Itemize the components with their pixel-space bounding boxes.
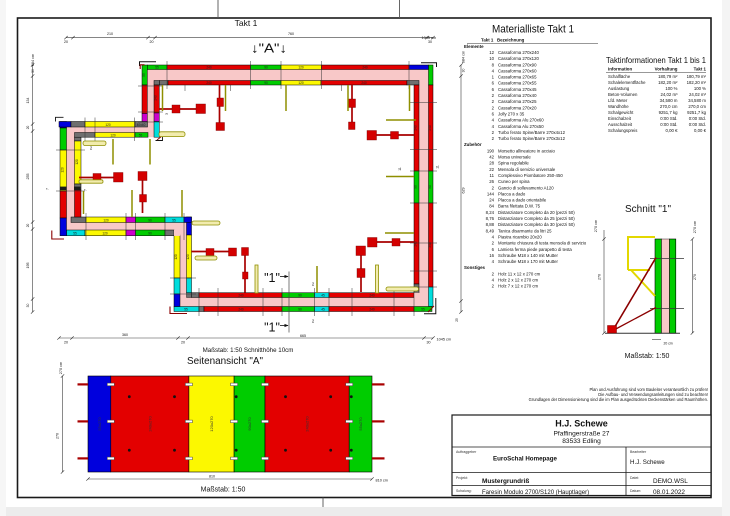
svg-text:Cassaforma 270x240: Cassaforma 270x240 — [498, 50, 539, 55]
svg-text:Turbo ferato Spine/Barre 270x4: Turbo ferato Spine/Barre 270x4x12 — [498, 130, 566, 135]
svg-text:270: 270 — [693, 274, 697, 280]
svg-text:Schalgewicht: Schalgewicht — [608, 110, 634, 115]
svg-text:55: 55 — [184, 308, 188, 312]
svg-text:Maßstab: 1:50 Schnitthöhe 10: Maßstab: 1:50 Schnitthöhe 10cm — [203, 347, 294, 354]
svg-text:100 %: 100 % — [665, 86, 677, 91]
svg-text:240: 240 — [154, 95, 158, 101]
svg-text:DEMO.WSL: DEMO.WSL — [653, 478, 688, 485]
svg-text:08.01.2022: 08.01.2022 — [653, 489, 685, 496]
svg-text:Schalung:: Schalung: — [456, 489, 472, 493]
svg-text:Faresin Modulo 2700/S120 (Haup: Faresin Modulo 2700/S120 (Hauptlager) — [482, 490, 589, 496]
svg-text:0:00 Std.: 0:00 Std. — [689, 122, 706, 127]
svg-text:Lfd. Meter: Lfd. Meter — [608, 98, 628, 103]
svg-text:30: 30 — [462, 69, 466, 73]
svg-text:Cassaforma 270x20: Cassaforma 270x20 — [498, 105, 537, 110]
svg-text:Maßstab: 1:50: Maßstab: 1:50 — [625, 353, 670, 360]
svg-text:55x270: 55x270 — [358, 417, 363, 431]
svg-text:90: 90 — [298, 308, 302, 312]
svg-text:0,00 €: 0,00 € — [666, 128, 679, 133]
svg-text:Cassaforma 270x40: Cassaforma 270x40 — [498, 93, 537, 98]
svg-text:Grundlagen der Dimensionierung: Grundlagen der Dimensionierung sind die … — [529, 397, 708, 402]
svg-text:120: 120 — [298, 81, 304, 85]
svg-text:Maßstab: 1:50: Maßstab: 1:50 — [201, 487, 246, 494]
svg-text:Vorhaltung: Vorhaltung — [655, 67, 678, 72]
svg-text:760: 760 — [288, 32, 294, 36]
svg-text:90: 90 — [264, 66, 268, 70]
svg-text:20: 20 — [181, 341, 185, 345]
svg-text:22: 22 — [489, 167, 494, 172]
svg-text:24,02 m³: 24,02 m³ — [689, 92, 707, 97]
svg-text:16: 16 — [489, 253, 494, 258]
svg-text:684 cm: 684 cm — [462, 51, 466, 63]
svg-text:810 cm: 810 cm — [376, 479, 388, 483]
svg-text:EuroSchal Homepage: EuroSchal Homepage — [493, 456, 558, 463]
svg-text:55: 55 — [421, 308, 425, 312]
svg-text:Takt 1: Takt 1 — [235, 18, 258, 28]
svg-text:255: 255 — [26, 174, 30, 180]
svg-text:144: 144 — [487, 191, 495, 196]
svg-text:Piastra ricambio 20x20: Piastra ricambio 20x20 — [498, 234, 542, 239]
svg-text:120: 120 — [103, 219, 109, 223]
svg-text:Holz 7 x 12 x 270 cm: Holz 7 x 12 x 270 cm — [498, 284, 539, 289]
svg-text:210: 210 — [107, 32, 113, 36]
svg-text:20: 20 — [64, 40, 68, 44]
svg-text:84: 84 — [489, 204, 494, 209]
svg-text:7: 7 — [84, 189, 88, 191]
svg-text:Barra filettata D.W. 75: Barra filettata D.W. 75 — [498, 204, 541, 209]
svg-text:Taktinformationen Takt 1 bis: Taktinformationen Takt 1 bis 1 — [606, 55, 706, 65]
svg-text:120: 120 — [60, 167, 64, 173]
svg-text:1045 cm: 1045 cm — [422, 36, 437, 40]
svg-text:120: 120 — [105, 123, 111, 127]
svg-text:Cuneo per spina: Cuneo per spina — [498, 179, 530, 184]
svg-text:Beton-Volumen: Beton-Volumen — [608, 92, 638, 97]
svg-text:55: 55 — [155, 66, 159, 70]
svg-text:8,76: 8,76 — [486, 216, 495, 221]
svg-text:120: 120 — [110, 134, 116, 138]
svg-text:Cassaforma 270x60: Cassaforma 270x60 — [498, 68, 537, 73]
svg-text:0:00 Std.: 0:00 Std. — [660, 116, 677, 121]
svg-text:34,580 m: 34,580 m — [660, 98, 678, 103]
svg-text:0:00 Std.: 0:00 Std. — [689, 116, 706, 121]
svg-text:240: 240 — [238, 308, 244, 312]
svg-text:Schraube M18 x 140 mit Mutter: Schraube M18 x 140 mit Mutter — [498, 253, 559, 258]
svg-text:190: 190 — [487, 148, 495, 153]
svg-text:83533 Edling: 83533 Edling — [562, 438, 601, 445]
svg-text:40x40: 40x40 — [137, 123, 146, 127]
svg-text:55x270: 55x270 — [97, 417, 102, 431]
svg-text:H.J. Schewe: H.J. Schewe — [555, 419, 608, 429]
svg-text:360: 360 — [122, 333, 128, 337]
svg-text:195: 195 — [26, 263, 30, 269]
svg-text:Zubehör: Zubehör — [464, 142, 482, 147]
svg-text:120: 120 — [75, 159, 79, 165]
svg-text:Jolly 270 x 35: Jolly 270 x 35 — [498, 111, 525, 116]
svg-text:55: 55 — [142, 73, 146, 77]
svg-text:Lamiera ferma piede parapetto: Lamiera ferma piede parapetto di testa — [498, 247, 572, 252]
svg-text:240: 240 — [414, 241, 418, 247]
svg-text:"1": "1" — [264, 321, 280, 335]
svg-text:90: 90 — [298, 294, 302, 298]
svg-text:9251,7 kg: 9251,7 kg — [659, 110, 678, 115]
svg-text:240: 240 — [369, 308, 375, 312]
svg-text:Wandhöhe: Wandhöhe — [608, 104, 629, 109]
svg-text:H.J. Schewe: H.J. Schewe — [630, 459, 665, 466]
svg-text:240: 240 — [238, 294, 244, 298]
svg-text:134: 134 — [26, 98, 30, 104]
svg-text:30: 30 — [31, 69, 35, 73]
svg-text:270 cm: 270 cm — [594, 220, 598, 232]
svg-text:Holz 2 x 12 x 270 cm: Holz 2 x 12 x 270 cm — [498, 278, 539, 283]
svg-text:0,00 €: 0,00 € — [694, 128, 707, 133]
svg-text:Takt 1: Takt 1 — [694, 67, 707, 72]
svg-text:Placca a dado orientabile: Placca a dado orientabile — [498, 198, 547, 203]
svg-text:90: 90 — [148, 219, 152, 223]
svg-text:Cassaforma 270x120: Cassaforma 270x120 — [498, 56, 539, 61]
svg-text:Sonstiges: Sonstiges — [464, 265, 486, 270]
svg-text:Cassaforma 270x25: Cassaforma 270x25 — [498, 99, 537, 104]
svg-text:Schalfläche: Schalfläche — [608, 74, 631, 79]
svg-text:Datei:: Datei: — [630, 476, 639, 480]
svg-text:Cassaforma 270x55: Cassaforma 270x55 — [498, 81, 537, 86]
svg-text:24,02 m³: 24,02 m³ — [661, 92, 679, 97]
svg-text:20: 20 — [150, 40, 154, 44]
svg-text:665: 665 — [300, 334, 306, 338]
svg-text:240x270: 240x270 — [147, 416, 152, 432]
svg-text:Cassaforma Alu 270x60: Cassaforma Alu 270x60 — [498, 118, 544, 123]
svg-text:240: 240 — [206, 66, 212, 70]
svg-text:120: 120 — [298, 66, 304, 70]
svg-text:8,49: 8,49 — [486, 228, 495, 233]
svg-text:3: 3 — [165, 113, 169, 115]
svg-text:240: 240 — [361, 81, 367, 85]
svg-text:270 cm: 270 cm — [59, 362, 63, 374]
svg-text:26: 26 — [489, 179, 494, 184]
svg-text:240: 240 — [206, 81, 212, 85]
svg-text:270: 270 — [598, 274, 602, 280]
svg-text:240: 240 — [414, 125, 418, 131]
svg-text:Cassaforma 270x90: Cassaforma 270x90 — [498, 62, 537, 67]
svg-text:45: 45 — [321, 294, 325, 298]
svg-text:Materialliste Takt 1: Materialliste Takt 1 — [492, 24, 574, 36]
svg-text:Takt 1: Takt 1 — [481, 38, 494, 43]
svg-text:55: 55 — [172, 219, 176, 223]
svg-text:Complessivo Piombatore 250-450: Complessivo Piombatore 250-450 — [498, 173, 563, 178]
svg-text:270: 270 — [56, 433, 60, 439]
svg-text:Distanziatore Completo da 25 (: Distanziatore Completo da 25 (pezzi 50) — [498, 216, 575, 221]
svg-text:Cassaforma 270x45: Cassaforma 270x45 — [498, 87, 537, 92]
svg-text:Cassaforma Alu 270x50: Cassaforma Alu 270x50 — [498, 124, 544, 129]
svg-text:24: 24 — [489, 198, 494, 203]
svg-text:90: 90 — [428, 185, 432, 189]
svg-text:270 cm: 270 cm — [693, 221, 697, 233]
svg-text:120: 120 — [174, 254, 178, 260]
svg-text:100 %: 100 % — [694, 86, 706, 91]
svg-text:Bezeichnung: Bezeichnung — [497, 38, 525, 43]
svg-text:34,580 m: 34,580 m — [688, 98, 706, 103]
svg-text:180,79 m²: 180,79 m² — [687, 74, 707, 79]
svg-text:Gancio di sollevamento A120: Gancio di sollevamento A120 — [498, 185, 554, 190]
svg-text:Distanziatore Completo da 30 (: Distanziatore Completo da 30 (pezzi 50) — [498, 222, 575, 227]
svg-text:Schalungspreis: Schalungspreis — [608, 128, 637, 133]
svg-text:10: 10 — [489, 56, 494, 61]
svg-text:Datum:: Datum: — [630, 489, 641, 493]
svg-text:240: 240 — [369, 294, 375, 298]
svg-text:Information: Information — [608, 67, 632, 72]
svg-text:270,0 cm: 270,0 cm — [660, 104, 678, 109]
svg-text:120x270: 120x270 — [209, 416, 214, 432]
svg-text:30: 30 — [427, 341, 431, 345]
svg-text:Seitenansicht "A": Seitenansicht "A" — [187, 356, 264, 367]
svg-text:240x270: 240x270 — [305, 416, 310, 432]
svg-text:684 cm: 684 cm — [31, 54, 35, 66]
svg-text:Projekt:: Projekt: — [456, 476, 468, 480]
svg-text:8,24: 8,24 — [486, 210, 495, 215]
svg-text:Tanica disarmante da litri 25: Tanica disarmante da litri 25 — [498, 228, 552, 233]
svg-text:25: 25 — [455, 318, 459, 322]
svg-text:30: 30 — [26, 304, 30, 308]
svg-text:Distanziatore Completo da 20 (: Distanziatore Completo da 20 (pezzi 50) — [498, 210, 575, 215]
svg-text:Spina regolabile: Spina regolabile — [498, 161, 529, 166]
svg-text:90: 90 — [148, 232, 152, 236]
svg-text:180,79 m²: 180,79 m² — [658, 74, 678, 79]
svg-text:240: 240 — [362, 66, 368, 70]
svg-text:Einschalzeit: Einschalzeit — [608, 116, 632, 121]
svg-text:Bearbeiter: Bearbeiter — [630, 450, 647, 454]
svg-text:120: 120 — [102, 232, 108, 236]
svg-text:810: 810 — [209, 475, 215, 479]
svg-text:20 cm: 20 cm — [664, 342, 673, 346]
svg-text:Turbo ferato Spine/Barre 270x3: Turbo ferato Spine/Barre 270x3x12 — [498, 136, 566, 141]
svg-text:90: 90 — [264, 81, 268, 85]
svg-text:42: 42 — [489, 155, 494, 160]
svg-text:30: 30 — [428, 40, 432, 44]
svg-text:9251,7 kg: 9251,7 kg — [687, 110, 706, 115]
svg-text:20: 20 — [26, 224, 30, 228]
svg-text:55: 55 — [139, 134, 143, 138]
svg-text:7: 7 — [46, 188, 50, 190]
svg-text:90: 90 — [414, 185, 418, 189]
svg-text:Auslastung: Auslastung — [608, 86, 630, 91]
svg-text:Pfaffingerstraße 27: Pfaffingerstraße 27 — [554, 431, 610, 438]
svg-text:270,0 cm: 270,0 cm — [688, 104, 706, 109]
svg-text:182,20 m²: 182,20 m² — [687, 80, 707, 85]
svg-text:Auftraggeber: Auftraggeber — [456, 450, 477, 454]
svg-text:Schalelementfläche: Schalelementfläche — [608, 80, 646, 85]
svg-text:0:00 Std.: 0:00 Std. — [660, 122, 677, 127]
svg-text:240: 240 — [428, 242, 432, 248]
svg-text:20: 20 — [26, 126, 30, 130]
svg-text:Cassaforma 270x65: Cassaforma 270x65 — [498, 75, 537, 80]
svg-text:240: 240 — [428, 125, 432, 131]
svg-text:182,20 m²: 182,20 m² — [658, 80, 678, 85]
svg-text:Mustergrundriß: Mustergrundriß — [482, 478, 529, 485]
svg-text:11: 11 — [398, 167, 402, 171]
svg-text:11: 11 — [436, 165, 440, 169]
svg-text:Schraube M18 x 170 mit Mutter: Schraube M18 x 170 mit Mutter — [498, 259, 559, 264]
svg-text:Montante chiusura di testa men: Montante chiusura di testa mensola di se… — [498, 241, 587, 246]
svg-text:28: 28 — [489, 161, 494, 166]
svg-text:20: 20 — [64, 341, 68, 345]
svg-text:12: 12 — [489, 50, 494, 55]
svg-text:Morsetto allineatore in acciai: Morsetto allineatore in acciaio — [498, 148, 555, 153]
svg-text:120: 120 — [186, 254, 190, 260]
svg-text:55: 55 — [73, 232, 77, 236]
svg-text:8,88: 8,88 — [486, 222, 495, 227]
svg-text:Elemente: Elemente — [464, 44, 484, 49]
svg-text:Placca a dado: Placca a dado — [498, 191, 526, 196]
svg-text:Schnitt "1": Schnitt "1" — [625, 204, 671, 215]
svg-text:Mensola di servizio universale: Mensola di servizio universale — [498, 167, 556, 172]
svg-text:45: 45 — [321, 308, 325, 312]
svg-text:90x270: 90x270 — [247, 417, 252, 431]
svg-text:629: 629 — [462, 188, 466, 194]
svg-text:11: 11 — [490, 173, 495, 178]
svg-text:1045 cm: 1045 cm — [437, 338, 452, 342]
svg-text:Ausschalzeit: Ausschalzeit — [608, 122, 633, 127]
svg-text:Morsa universale: Morsa universale — [498, 155, 531, 160]
svg-text:↓"A"↓: ↓"A"↓ — [251, 41, 287, 56]
svg-text:Holz 11 x 12 x 270 cm: Holz 11 x 12 x 270 cm — [498, 271, 541, 276]
svg-text:"1": "1" — [264, 271, 280, 285]
